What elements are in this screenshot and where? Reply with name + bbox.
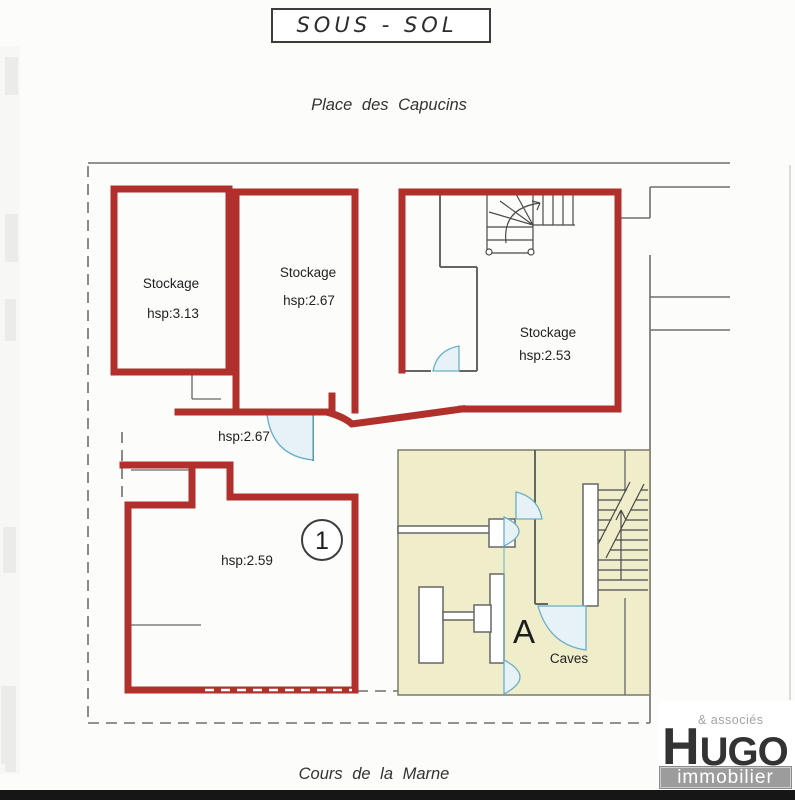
floor-plan-page: SOUS - SOL Place des Capucins Cours de l…: [0, 0, 795, 800]
logo-brand-rest: UGO: [700, 737, 788, 768]
room-height-stockage-2: hsp:2.67: [283, 293, 335, 308]
room-label-stockage-2: Stockage: [280, 265, 336, 280]
street-name-top: Place des Capucins: [311, 96, 467, 114]
corridor-height: hsp:2.67: [218, 429, 270, 444]
scan-artifacts: [0, 46, 20, 774]
door-arcs-icon: [267, 346, 459, 460]
lot-number: 1: [315, 527, 329, 555]
bottom-black-bar: [0, 790, 795, 800]
plan-title: SOUS - SOL: [296, 13, 457, 37]
winder-stairs-icon: [486, 192, 575, 255]
logo-brand-initial: H: [662, 727, 700, 768]
agency-logo: & associés H UGO immobilier: [658, 701, 795, 790]
caves-area: A Caves: [398, 450, 650, 695]
room-height-stockage-1: hsp:3.13: [147, 306, 199, 321]
street-name-bottom: Cours de la Marne: [299, 765, 450, 783]
logo-brand-text: H UGO: [662, 715, 788, 768]
logo-tagline-text: immobilier: [660, 767, 791, 788]
floor-plan-canvas: SOUS - SOL Place des Capucins Cours de l…: [0, 0, 795, 800]
caves-label: Caves: [550, 651, 589, 666]
room-label-stockage-3: Stockage: [520, 325, 576, 340]
room-label-stockage-1: Stockage: [143, 276, 199, 291]
caves-unit-letter: A: [513, 613, 535, 650]
main-room-height: hsp:2.59: [221, 553, 273, 568]
room-height-stockage-3: hsp:2.53: [519, 348, 571, 363]
